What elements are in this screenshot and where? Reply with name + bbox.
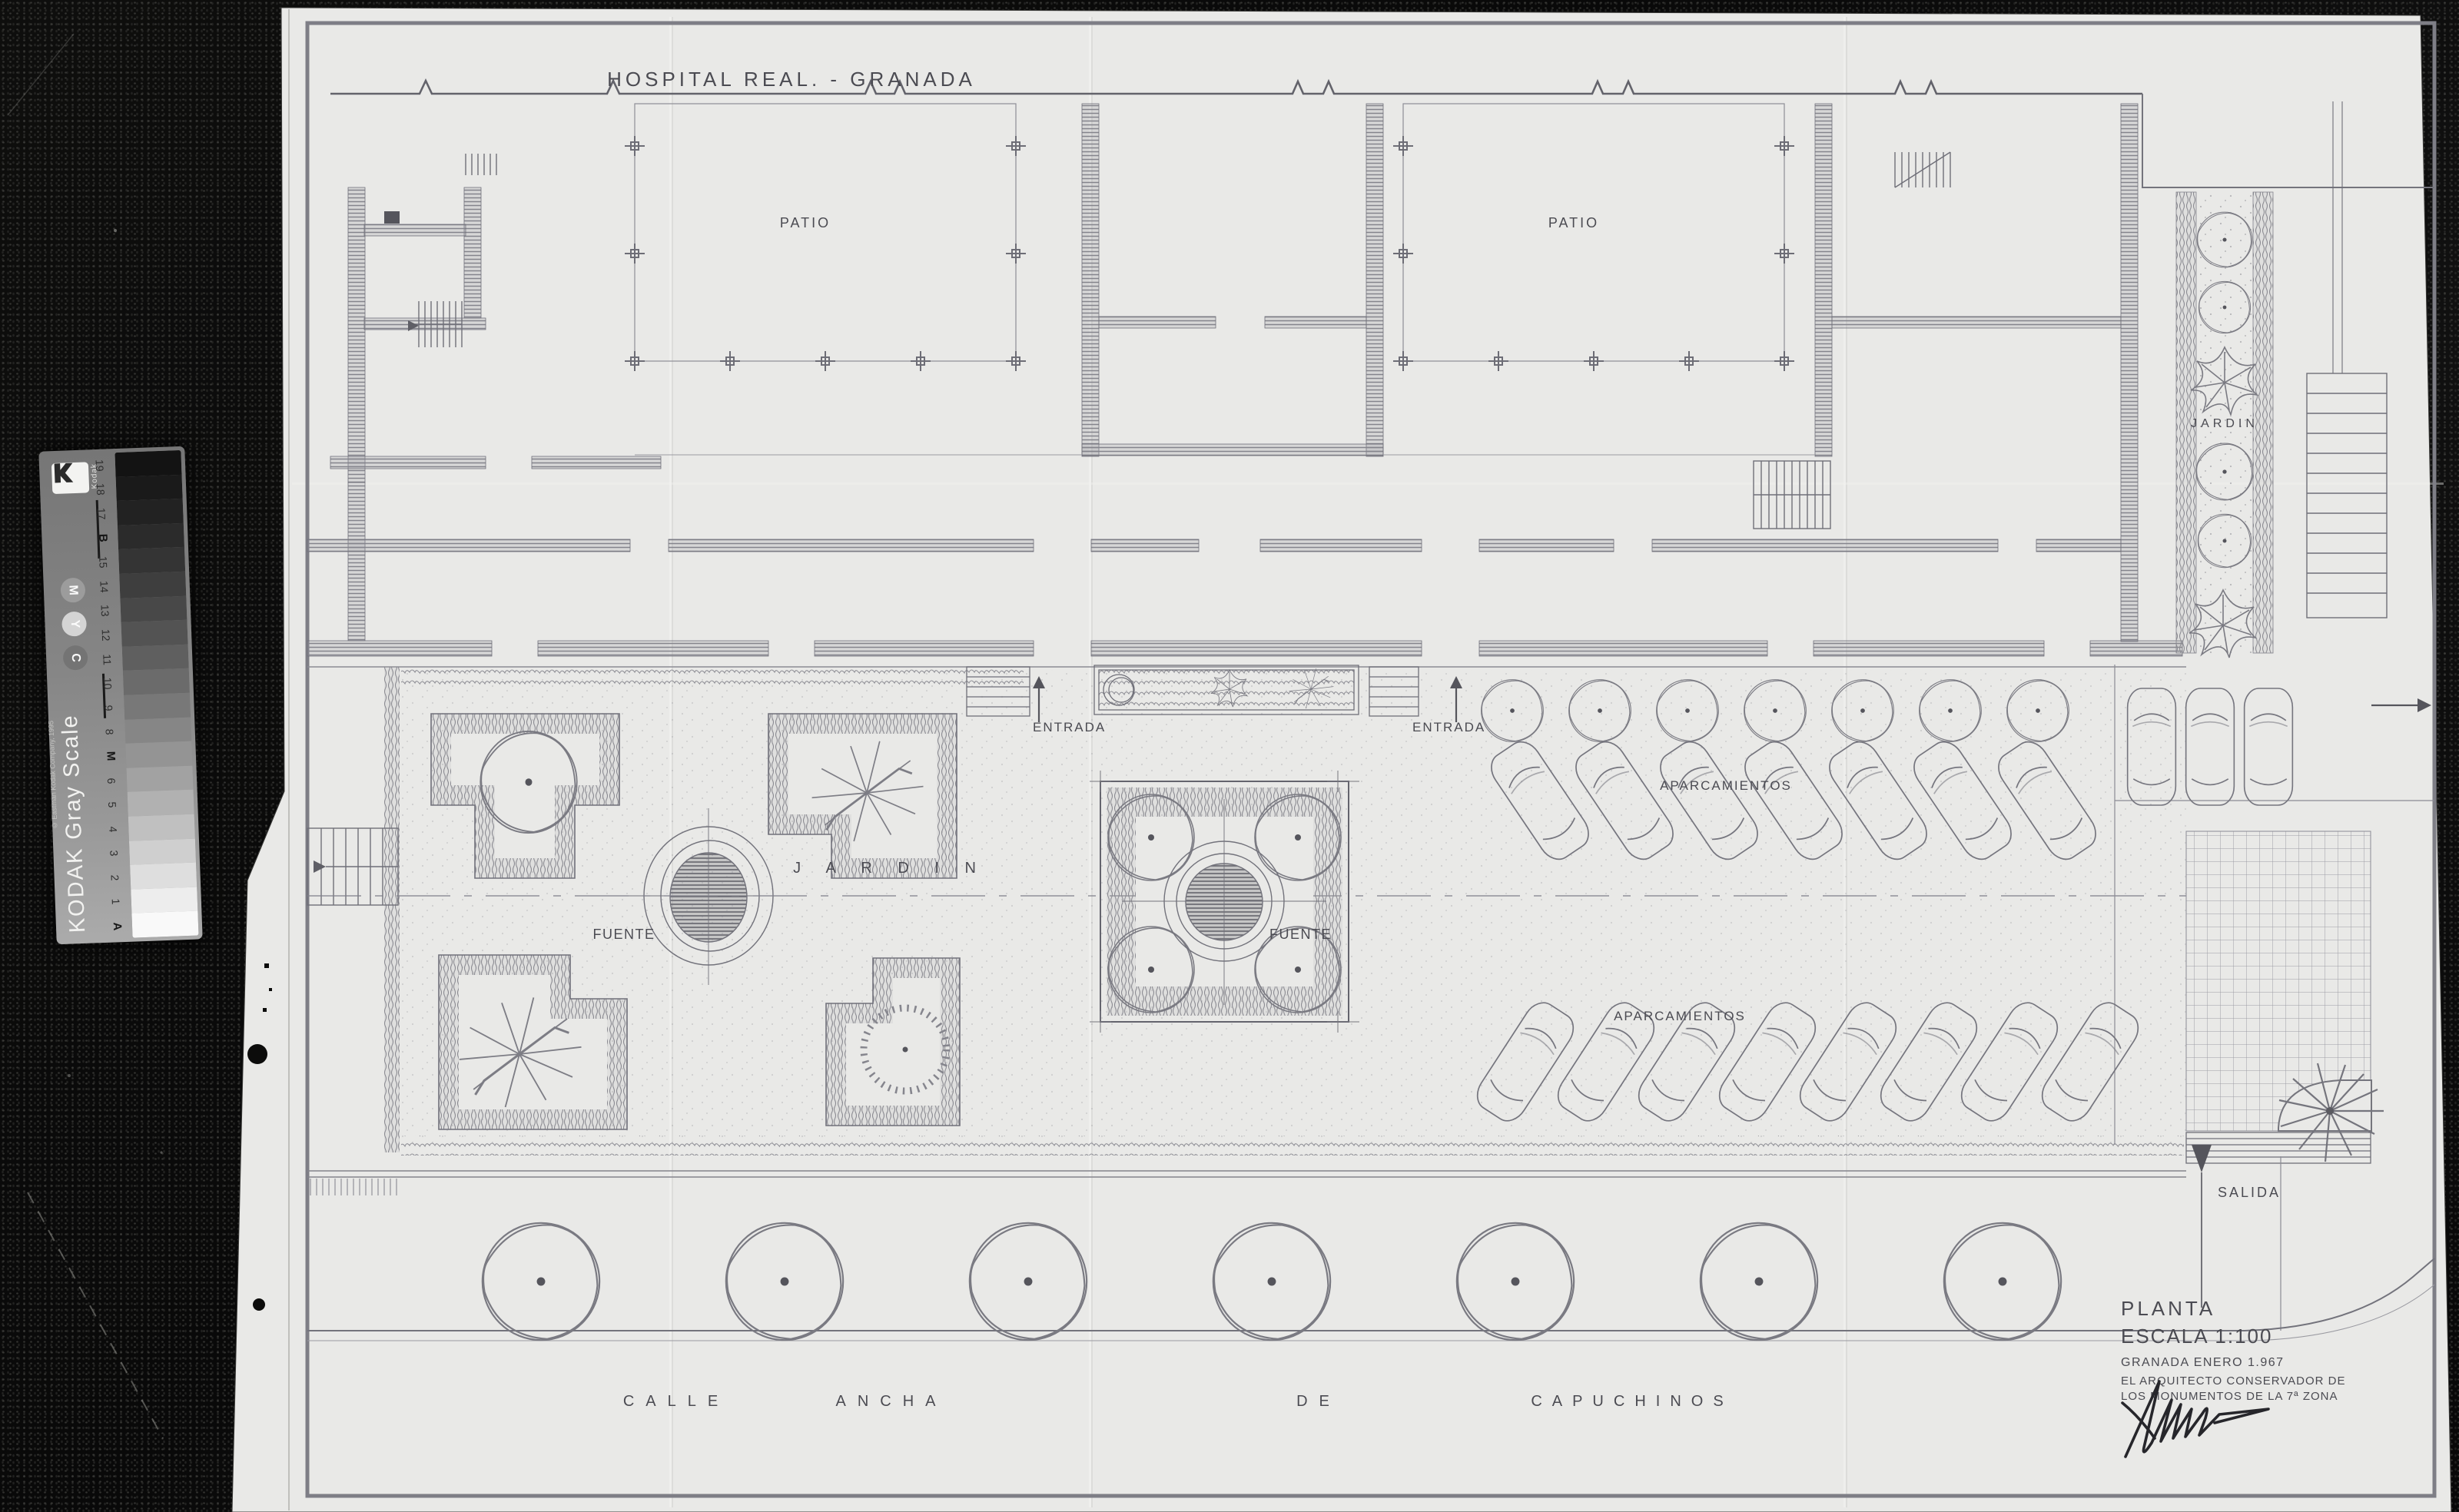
plan-type-label: PLANTA	[2121, 1297, 2215, 1320]
kodak-step-label: 3	[101, 841, 128, 866]
street-word-calle: CALLE	[623, 1393, 729, 1410]
kodak-step	[122, 644, 189, 671]
fuente-garden-label: FUENTE	[593, 927, 655, 942]
kodak-step-label: 6	[98, 768, 124, 794]
kodak-step	[124, 693, 191, 720]
aparcamientos-upper-label: APARCAMIENTOS	[1660, 778, 1792, 793]
kodak-step	[124, 717, 191, 744]
kodak-step-label: 1	[102, 889, 129, 914]
kodak-step-label: 4	[100, 817, 127, 842]
kodak-gray-scale-card: Kodak MYC KODAK Gray Scale © Eastman Kod…	[38, 446, 202, 945]
kodak-step-label: B	[89, 526, 116, 551]
kodak-step	[131, 887, 197, 913]
central-plaza	[1090, 771, 1359, 1033]
kodak-step-label: 18	[88, 477, 114, 502]
kodak-step-label: 12	[93, 622, 120, 648]
jardin-main-label: J A R D I N	[793, 860, 987, 877]
kodak-step	[130, 863, 197, 890]
kodak-step	[114, 450, 181, 477]
entrada-left-label: ENTRADA	[1033, 720, 1106, 734]
kodak-step-label: 10	[95, 671, 121, 696]
street-word-capuchinos: CAPUCHINOS	[1531, 1393, 1733, 1410]
kodak-step-label: 13	[91, 598, 118, 624]
salida-label: SALIDA	[2218, 1185, 2281, 1200]
kodak-step	[116, 474, 183, 501]
kodak-step	[123, 668, 190, 695]
entrada-right-label: ENTRADA	[1412, 720, 1485, 734]
kodak-step-label: 19	[86, 453, 113, 478]
kodak-step	[118, 547, 185, 574]
kodak-step-label: 15	[90, 549, 117, 575]
jardin-strip-label: JARDIN	[2191, 417, 2258, 430]
kodak-step-label: 17	[88, 501, 115, 526]
kodak-ink-circles: MYC	[60, 578, 88, 680]
kodak-step-label: M	[97, 744, 124, 769]
kodak-step-label: 5	[99, 792, 126, 817]
kodak-step	[128, 814, 195, 841]
street-word-de: DE	[1296, 1393, 1341, 1410]
patio-right-label: PATIO	[1548, 215, 1599, 230]
date-label: GRANADA ENERO 1.967	[2121, 1356, 2285, 1369]
kodak-step	[128, 790, 194, 817]
kodak-step-label: 14	[91, 574, 118, 599]
plan-drawing: HOSPITAL REAL. - GRANADA PATIO PATIO JAR…	[0, 0, 2459, 1512]
kodak-step	[126, 765, 193, 792]
kodak-step-label: 8	[96, 719, 123, 744]
kodak-step-label: 9	[95, 695, 122, 721]
kodak-step	[125, 741, 192, 768]
kodak-step-label: 11	[94, 647, 121, 672]
kodak-step	[121, 620, 188, 647]
kodak-step	[117, 499, 184, 526]
kodak-ink-circle: M	[60, 578, 85, 603]
drawing-title: HOSPITAL REAL. - GRANADA	[607, 68, 976, 91]
archival-photo: HOSPITAL REAL. - GRANADA PATIO PATIO JAR…	[0, 0, 2459, 1512]
kodak-step	[118, 523, 184, 550]
window-block	[384, 211, 400, 224]
kodak-step	[129, 838, 196, 865]
kodak-step	[119, 572, 186, 598]
kodak-ink-circle: C	[63, 645, 88, 671]
kodak-logo-icon	[51, 462, 89, 494]
scale-label: ESCALA 1:100	[2121, 1325, 2272, 1348]
street-word-ancha: ANCHA	[835, 1393, 947, 1410]
patio-left-label: PATIO	[780, 215, 831, 230]
kodak-step	[131, 911, 198, 938]
fuente-plaza-label: FUENTE	[1269, 927, 1332, 942]
architect-line-1: EL ARQUITECTO CONSERVADOR DE	[2121, 1374, 2346, 1388]
kodak-step	[120, 595, 187, 622]
kodak-step-label: 2	[101, 865, 128, 890]
kodak-step-label: A	[103, 913, 130, 939]
aparcamientos-lower-label: APARCAMIENTOS	[1614, 1009, 1746, 1023]
kodak-ink-circle: Y	[61, 612, 87, 637]
